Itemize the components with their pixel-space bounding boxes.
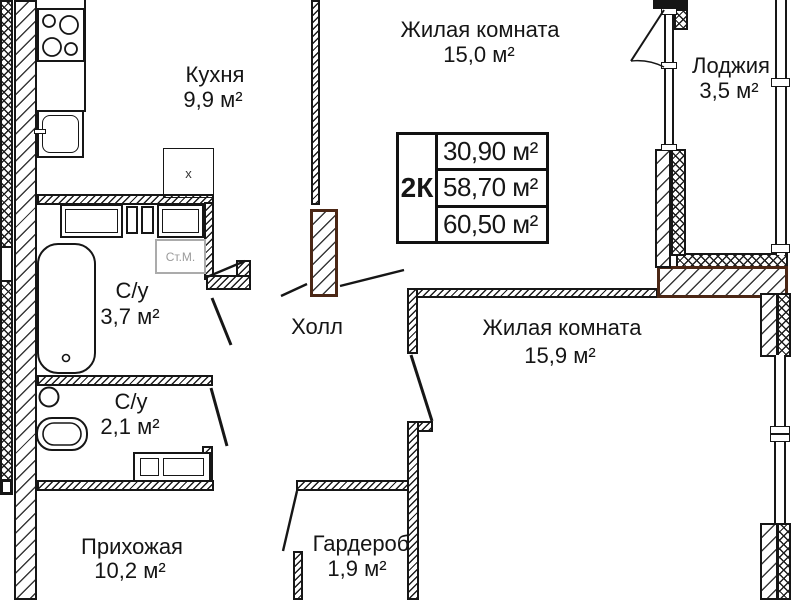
opening-edge bbox=[411, 355, 432, 421]
area-row-main: 58,70 м² bbox=[438, 168, 546, 204]
opening-edge bbox=[207, 261, 245, 277]
room-label-kitchen: Кухня bbox=[186, 62, 245, 88]
room-area-wardrobe: 1,9 м² bbox=[327, 556, 386, 582]
room-area-toilet: 2,1 м² bbox=[100, 414, 159, 440]
area-row-total: 60,50 м² bbox=[438, 205, 546, 241]
door-swing bbox=[631, 61, 664, 67]
floor-plan: x Ст.М. 2К bbox=[0, 0, 800, 600]
wash-basin bbox=[40, 388, 59, 407]
door-leaf bbox=[283, 491, 297, 551]
room-area-kitchen: 9,9 м² bbox=[183, 87, 242, 113]
opening-edge bbox=[340, 270, 404, 286]
burner-icon bbox=[60, 16, 78, 34]
room-label-hall: Холл bbox=[291, 314, 343, 340]
area-row-living: 30,90 м² bbox=[438, 135, 546, 168]
burner-icon bbox=[43, 38, 61, 56]
room-area-living-right: 15,9 м² bbox=[524, 343, 595, 369]
room-area-living-top: 15,0 м² bbox=[443, 42, 514, 68]
room-label-living-right: Жилая комната bbox=[483, 315, 642, 341]
room-label-toilet: С/у bbox=[115, 389, 148, 415]
bathtub bbox=[38, 244, 95, 373]
opening-edge bbox=[281, 284, 307, 296]
burner-icon bbox=[43, 15, 55, 27]
room-label-loggia: Лоджия bbox=[692, 53, 770, 79]
door-leaf bbox=[212, 298, 231, 345]
room-label-bathroom: С/у bbox=[116, 278, 149, 304]
apartment-type-label: 2К bbox=[399, 135, 438, 241]
room-label-wardrobe: Гардероб bbox=[313, 531, 410, 557]
room-label-living-top: Жилая комната bbox=[401, 17, 560, 43]
door-leaf bbox=[631, 10, 664, 61]
burner-icon bbox=[65, 43, 77, 55]
room-area-entry: 10,2 м² bbox=[94, 558, 165, 584]
apartment-info-table: 2К 30,90 м² 58,70 м² 60,50 м² bbox=[396, 132, 549, 244]
room-area-loggia: 3,5 м² bbox=[699, 78, 758, 104]
room-area-bathroom: 3,7 м² bbox=[100, 304, 159, 330]
angled-wall bbox=[211, 388, 227, 446]
room-label-entry: Прихожая bbox=[81, 534, 183, 560]
apartment-areas: 30,90 м² 58,70 м² 60,50 м² bbox=[438, 135, 546, 241]
